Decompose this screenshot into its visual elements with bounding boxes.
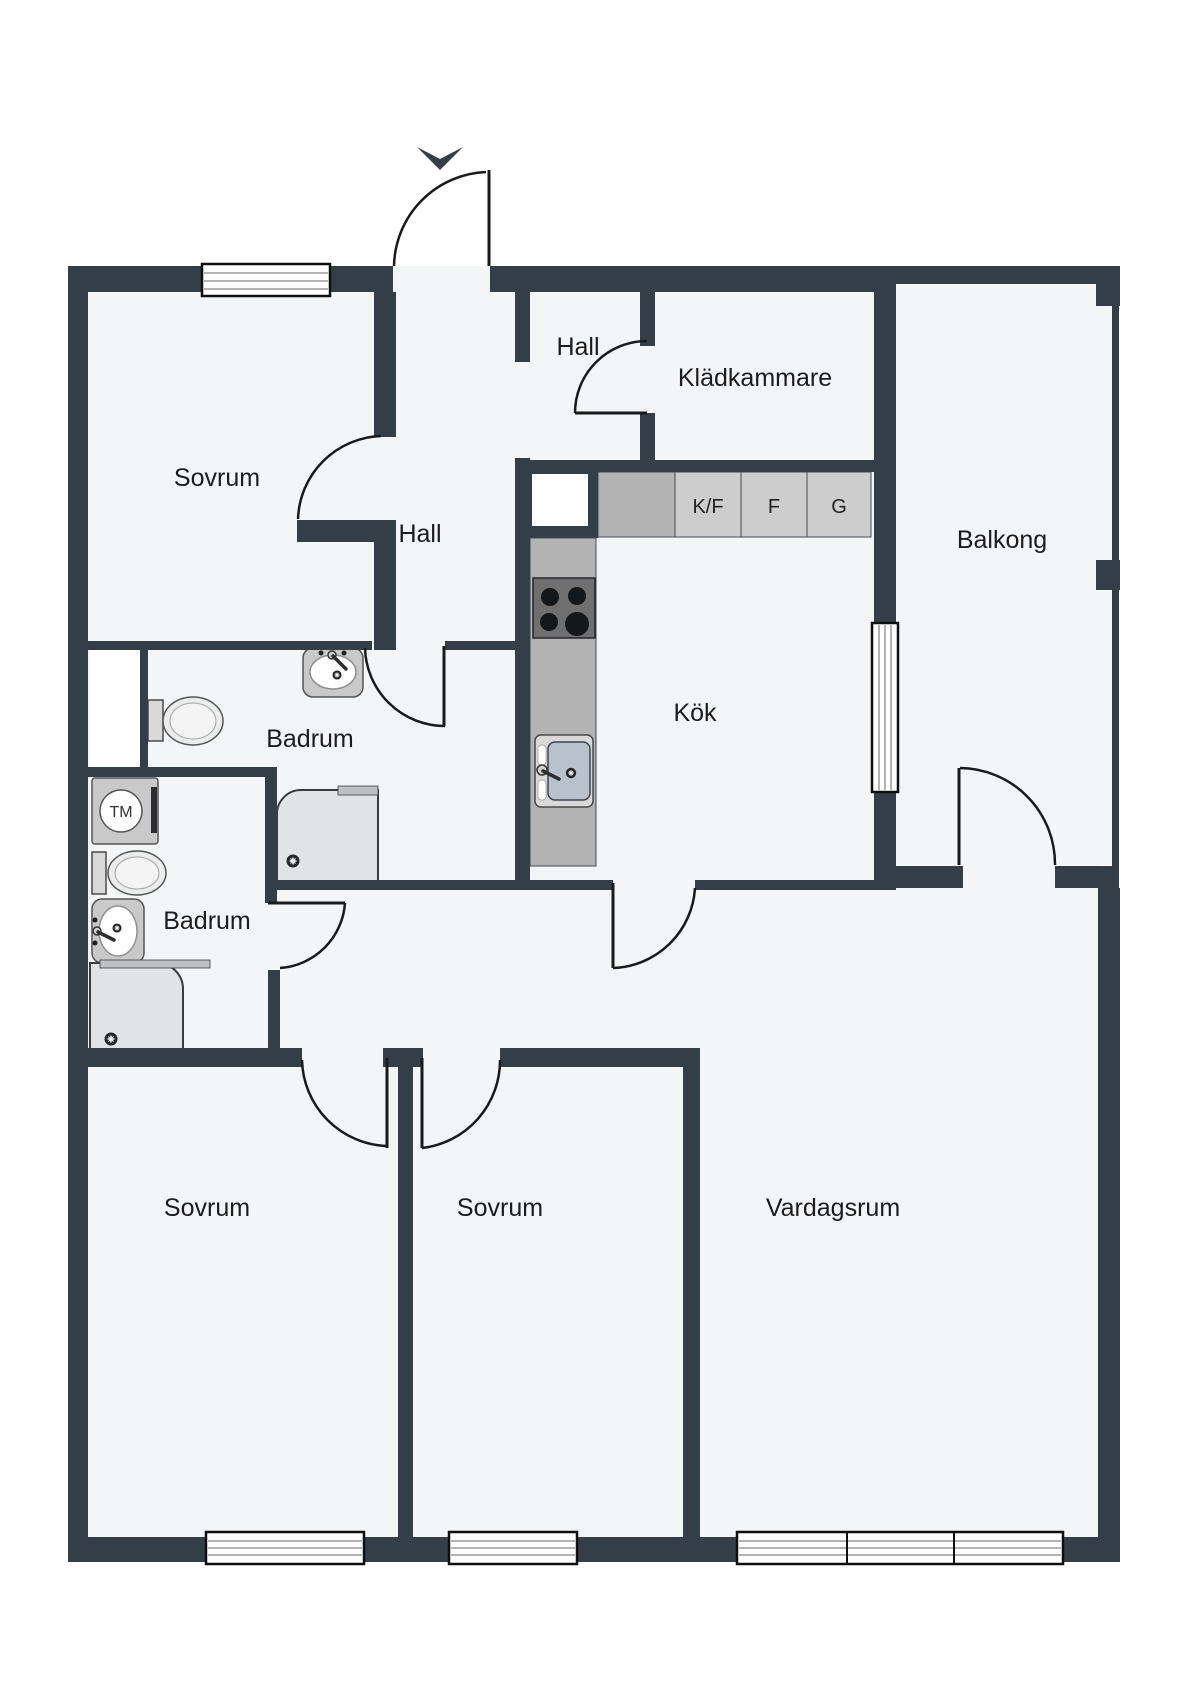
wall-left xyxy=(68,266,88,1562)
drainer-slot xyxy=(538,780,546,800)
shower-door-handle xyxy=(338,786,378,795)
label-kitchen: Kök xyxy=(673,699,717,727)
tap-dot xyxy=(342,651,347,656)
livingroom-top-wall xyxy=(896,866,963,888)
kitchen-counter-top xyxy=(598,472,675,537)
shaft-niche xyxy=(90,650,140,767)
label-freezer: F xyxy=(768,496,780,518)
washing-machine-door-bar xyxy=(151,787,157,833)
kitchen-balcony-wall-2 xyxy=(874,790,896,890)
drain-icon xyxy=(112,923,121,932)
burner-icon xyxy=(568,587,586,605)
label-bathroom-upper: Badrum xyxy=(266,725,354,753)
washing-machine-icon: TM xyxy=(92,778,158,844)
sink-icon xyxy=(92,899,144,963)
shower-tray xyxy=(90,963,183,1053)
toilet-tank xyxy=(92,852,106,894)
balcony-pillar-mid xyxy=(1096,560,1120,590)
label-bedroom-nw: Sovrum xyxy=(174,464,260,492)
drain-icon xyxy=(287,855,300,868)
floorplan-svg: TM xyxy=(0,0,1200,1697)
label-livingroom: Vardagsrum xyxy=(766,1194,900,1222)
bathroom-lower-right-wall-2 xyxy=(268,970,280,1053)
drain-icon xyxy=(566,768,576,778)
label-balcony: Balkong xyxy=(957,526,1047,554)
entrance-threshold xyxy=(393,266,490,293)
toilet-bowl-inner xyxy=(170,703,216,739)
label-bedroom-sw: Sovrum xyxy=(164,1194,250,1222)
bathroom-divider-wall xyxy=(88,767,270,777)
drain-icon xyxy=(105,1033,118,1046)
mid-wall-stub xyxy=(383,1048,423,1067)
window-bedroom-sw xyxy=(206,1532,364,1564)
bathroom-upper-top-wall-2 xyxy=(445,641,530,650)
wall-top-1 xyxy=(68,266,202,292)
shower-door-handle xyxy=(100,960,210,968)
tap-dot xyxy=(93,918,98,923)
label-bathroom-lower: Badrum xyxy=(163,907,251,935)
washing-machine-label: TM xyxy=(109,804,132,821)
tap-dot xyxy=(93,941,98,946)
label-g-unit: G xyxy=(831,496,847,518)
entrance-arrow-icon xyxy=(417,147,463,170)
shower-icon xyxy=(277,786,378,881)
sink-basin xyxy=(310,655,356,689)
bedroom-nw-wall-stub xyxy=(297,520,396,542)
label-hall: Hall xyxy=(398,520,441,548)
kitchen-left-wall xyxy=(515,458,530,890)
kitchen-balcony-wall-1 xyxy=(874,284,896,625)
drainer-slot xyxy=(538,745,546,765)
bathroom-upper-top-wall-1 xyxy=(88,641,372,650)
label-fridge-freezer: K/F xyxy=(692,496,723,518)
wall-right xyxy=(1098,888,1120,1562)
shaft-right-wall xyxy=(140,650,148,768)
entrance-door xyxy=(394,147,489,266)
kitchen-bottom-wall-1 xyxy=(268,880,613,890)
tap-dot xyxy=(319,651,324,656)
vent-shaft xyxy=(532,474,588,526)
mid-wall-2 xyxy=(500,1048,700,1067)
bedroom-nw-right-wall-2 xyxy=(374,542,396,650)
window-top xyxy=(202,264,330,296)
wall-top-2 xyxy=(330,266,393,292)
closet-left-wall-2 xyxy=(640,413,655,460)
toilet-icon xyxy=(92,851,166,895)
toilet-bowl-inner xyxy=(115,857,159,889)
burner-icon xyxy=(540,613,558,631)
wall-top-3 xyxy=(490,266,876,292)
sink-icon xyxy=(303,648,363,697)
wall-top-balcony xyxy=(876,266,1120,284)
window-livingroom xyxy=(737,1532,1063,1564)
bedroom-nw-right-wall-1 xyxy=(374,292,396,437)
bedrooms-divider-wall xyxy=(398,1067,413,1537)
label-closet: Klädkammare xyxy=(678,364,832,392)
livingroom-left-wall xyxy=(683,1048,700,1537)
floorplan-page: TM xyxy=(0,0,1200,1697)
window-bedroom-s xyxy=(449,1532,577,1564)
wall-bottom-2 xyxy=(364,1537,449,1562)
closet-left-wall-1 xyxy=(640,292,655,346)
window-kitchen-balcony xyxy=(872,623,898,792)
mid-wall-1 xyxy=(88,1048,302,1067)
hall-kitchen-wall-upper xyxy=(515,292,530,362)
wall-bottom-1 xyxy=(68,1537,206,1562)
burner-icon xyxy=(565,612,589,636)
toilet-icon xyxy=(148,697,223,745)
kitchen-bottom-wall-2 xyxy=(695,880,896,890)
label-hall-upper: Hall xyxy=(556,333,599,361)
kitchen-sink-icon xyxy=(535,735,593,807)
balcony-bottom-stub xyxy=(1055,866,1119,888)
kitchen-top-wall xyxy=(515,460,876,472)
burner-icon xyxy=(541,588,559,606)
label-bedroom-s: Sovrum xyxy=(457,1194,543,1222)
toilet-tank xyxy=(148,700,163,741)
floor-areas xyxy=(88,266,1112,1537)
drain-icon xyxy=(332,670,341,679)
wall-bottom-3 xyxy=(577,1537,737,1562)
